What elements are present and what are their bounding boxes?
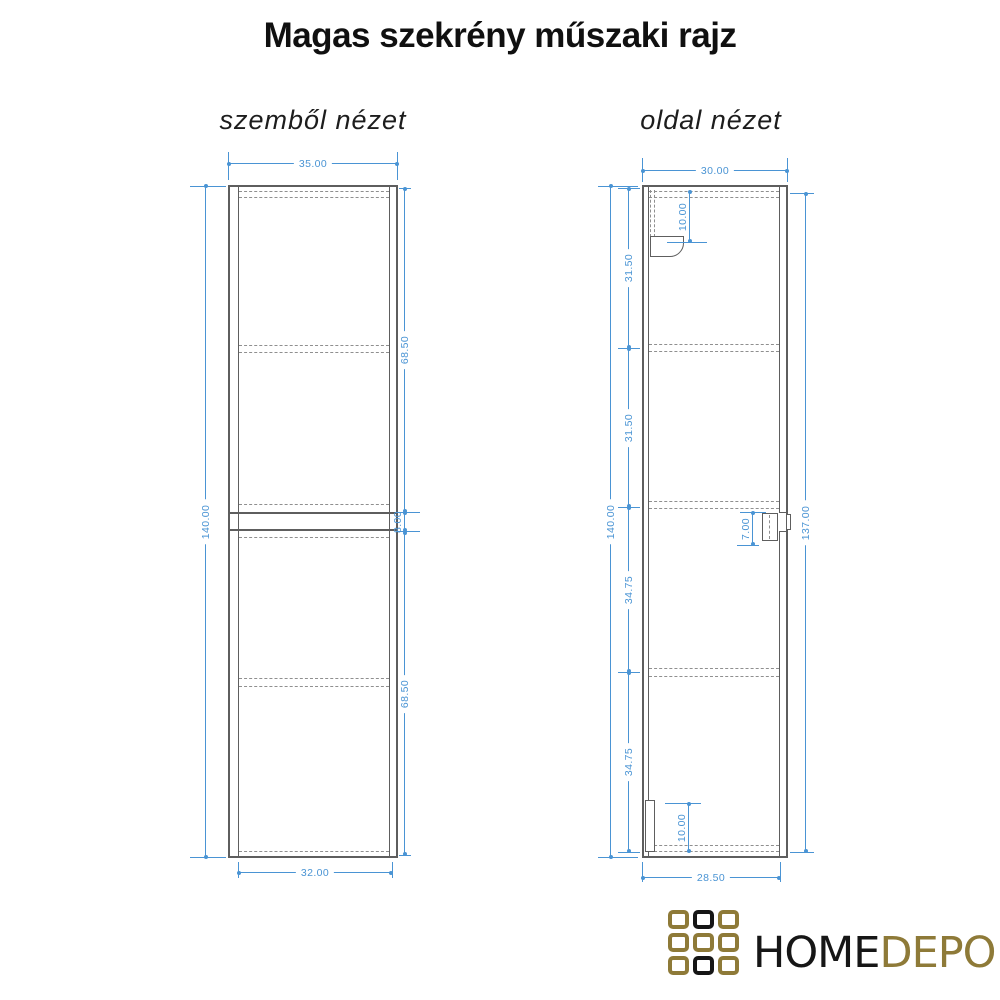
dim-value: 137.00 — [800, 500, 812, 545]
side-mid-bracket — [762, 513, 778, 541]
front-shelf-lower-hidden-line — [239, 678, 389, 687]
dim-side-top-bracket-offset: 10.00 — [689, 191, 690, 242]
front-lower-door-top-line — [229, 529, 397, 531]
dim-value: 140.00 — [605, 499, 617, 544]
side-shelf-2-hidden-line — [649, 501, 779, 509]
extension-line — [228, 152, 229, 180]
dim-front-inner-width: 32.00 — [238, 872, 392, 873]
dim-side-mid-bracket-offset: 7.00 — [752, 512, 753, 545]
front-mid-hidden-line-2 — [239, 537, 389, 538]
homedepo-logo — [668, 910, 739, 975]
side-shelf-1-hidden-line — [649, 344, 779, 352]
side-door-inner-line-upper — [779, 187, 780, 512]
dim-side-segment-2: 31.50 — [628, 348, 629, 507]
logo-grid-square-gold — [668, 933, 689, 952]
logo-grid-square-gold — [693, 933, 714, 952]
logo-grid-square-gold — [718, 956, 739, 975]
logo-grid-square-black — [693, 910, 714, 929]
dim-value: 31.50 — [623, 408, 635, 446]
side-top-panel-hidden-line — [649, 191, 779, 198]
front-cabinet-outline — [228, 185, 398, 858]
dim-value: 10.00 — [677, 202, 689, 230]
dim-side-door-height: 137.00 — [805, 193, 806, 852]
technical-drawing-page: Magas szekrény műszaki rajz szemből néze… — [0, 0, 1000, 1000]
extension-line — [190, 857, 226, 858]
extension-line — [397, 152, 398, 180]
dim-side-bottom-bracket-offset: 10.00 — [688, 803, 689, 852]
logo-grid-square-gold — [668, 910, 689, 929]
logo-grid-icon — [668, 910, 739, 975]
dim-value: 28.50 — [692, 872, 730, 884]
extension-line — [598, 857, 638, 858]
front-mid-hidden-line-1 — [239, 504, 389, 505]
side-door-hinge-detail — [786, 514, 791, 530]
side-back-wall-line — [648, 187, 649, 856]
logo-grid-square-gold — [718, 910, 739, 929]
dim-value: 10.00 — [676, 813, 688, 841]
front-left-wall-line — [238, 187, 239, 856]
dim-front-upper-door-height: 68.50 — [404, 188, 405, 512]
dim-value: 32.00 — [296, 867, 334, 879]
extension-line — [598, 186, 638, 187]
dim-side-segment-1: 31.50 — [628, 188, 629, 348]
dim-value: 140.00 — [200, 499, 212, 544]
dim-value: 31.50 — [623, 249, 635, 287]
page-title: Magas szekrény műszaki rajz — [0, 16, 1000, 56]
side-bottom-panel-hidden-line — [649, 845, 779, 852]
dim-value: 68.50 — [399, 331, 411, 369]
dim-value: 35.00 — [294, 158, 332, 170]
leader-line — [737, 545, 759, 546]
front-bottom-panel-hidden-line — [239, 851, 389, 852]
dim-side-segment-3: 34.75 — [628, 507, 629, 672]
leader-line — [667, 242, 707, 243]
extension-line — [190, 186, 226, 187]
extension-line — [392, 862, 393, 878]
logo-word-home: HOME — [753, 928, 879, 978]
dim-front-overall-height: 140.00 — [205, 185, 206, 858]
logo-wordmark: HOMEDEPO — [753, 928, 996, 978]
front-upper-door-bottom-line — [229, 512, 397, 514]
dim-side-overall-height: 140.00 — [610, 185, 611, 858]
dim-value: 34.75 — [623, 570, 635, 608]
side-top-bracket-hidden-line — [650, 190, 651, 237]
logo-word-depo: DEPO — [879, 928, 995, 978]
logo-grid-square-black — [693, 956, 714, 975]
dim-value: 8.00 — [392, 510, 404, 532]
dim-value: 34.75 — [623, 743, 635, 781]
side-bottom-bracket — [645, 800, 655, 852]
front-right-wall-line — [389, 187, 390, 856]
front-shelf-upper-hidden-line — [239, 345, 389, 353]
side-door-notch-line — [779, 531, 787, 532]
dim-value: 7.00 — [740, 517, 752, 539]
side-door-inner-line-lower — [779, 532, 780, 856]
side-top-bracket-hidden-line — [654, 190, 655, 237]
front-top-panel-hidden-line — [239, 191, 389, 198]
side-door-notch-line — [779, 512, 787, 513]
side-shelf-3-hidden-line — [649, 668, 779, 677]
dim-side-segment-4: 34.75 — [628, 672, 629, 852]
dim-front-door-gap: 8.00 — [404, 512, 405, 531]
front-view-label: szemből nézet — [163, 105, 463, 136]
side-view-label: oldal nézet — [561, 105, 861, 136]
logo-grid-square-gold — [718, 933, 739, 952]
extension-line — [790, 852, 814, 853]
dim-front-lower-door-height: 68.50 — [404, 532, 405, 855]
side-mid-bracket-hidden-line — [769, 515, 770, 539]
dim-side-inner-depth: 28.50 — [642, 877, 780, 878]
logo-grid-square-gold — [668, 956, 689, 975]
leader-line — [665, 803, 701, 804]
dim-front-overall-width: 35.00 — [228, 163, 398, 164]
dim-value: 30.00 — [696, 165, 734, 177]
dim-value: 68.50 — [399, 674, 411, 712]
dim-side-overall-depth: 30.00 — [642, 170, 788, 171]
extension-line — [790, 193, 814, 194]
